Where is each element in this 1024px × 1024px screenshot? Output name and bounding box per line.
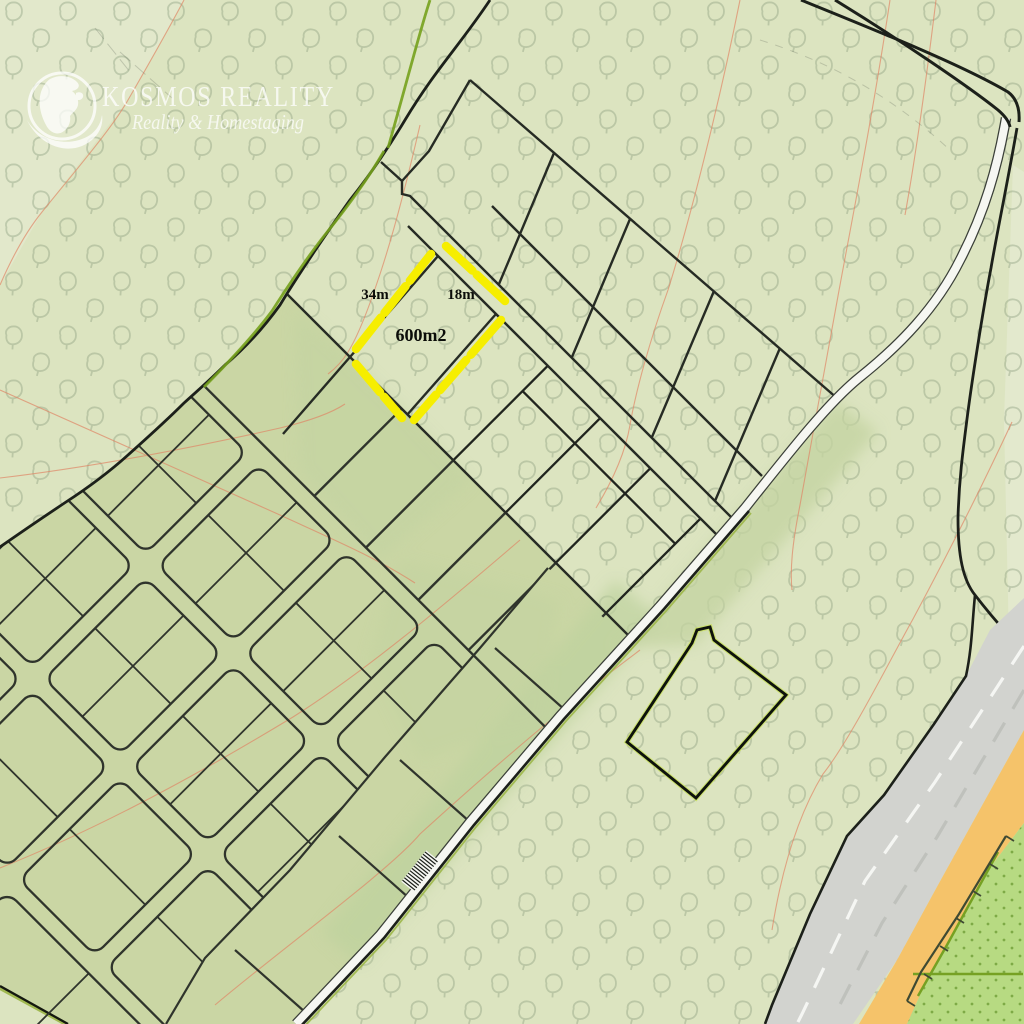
- svg-text:Reality & Homestaging: Reality & Homestaging: [131, 110, 304, 134]
- svg-text:18m: 18m: [447, 287, 475, 303]
- svg-text:34m: 34m: [361, 287, 389, 303]
- svg-text:600m2: 600m2: [396, 325, 447, 345]
- svg-text:KOSMOS REALITY: KOSMOS REALITY: [102, 82, 335, 113]
